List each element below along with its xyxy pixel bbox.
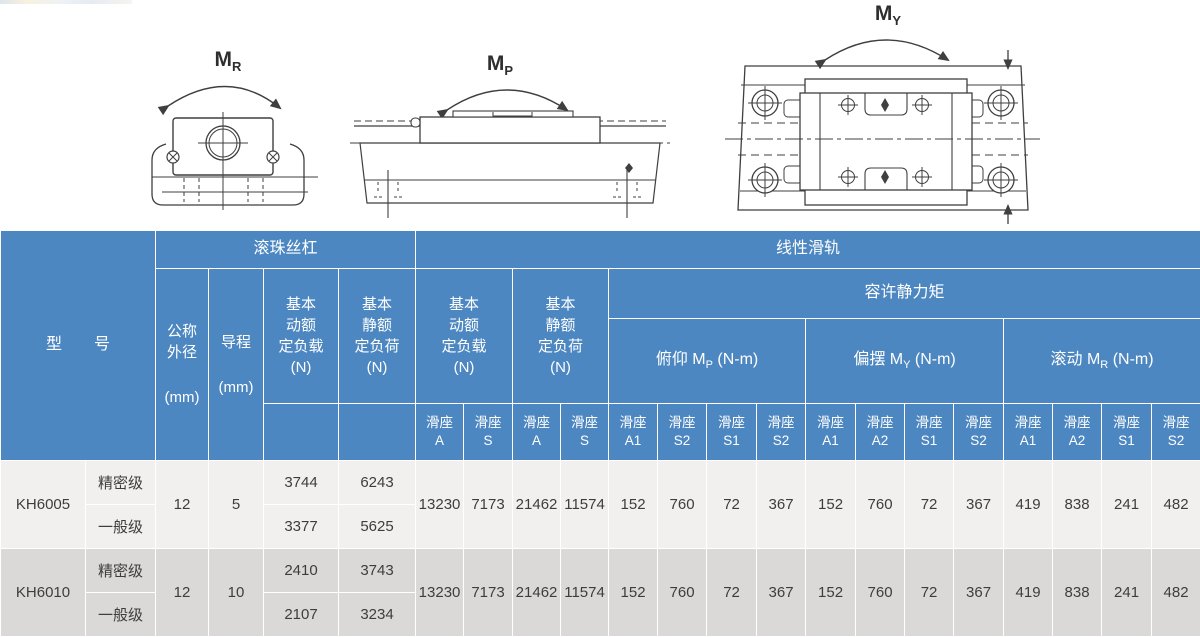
pitch-moment-diagram: MP [350, 48, 670, 228]
header-linear-rail: 线性滑轨 [416, 231, 1200, 269]
moment-value-cell: 367 [954, 461, 1004, 549]
model-cell: KH6010 [1, 549, 86, 637]
lg-value-cell: 21462 [513, 461, 561, 549]
lg-value-cell: 13230 [416, 549, 464, 637]
lg-value-cell: 7173 [464, 549, 513, 637]
carriage-header-cell: 滑座 S [561, 404, 609, 461]
header-bs-static-spacer [339, 404, 416, 461]
lead-unit: (mm) [219, 377, 254, 398]
bs-dynamic-cell: 3744 [264, 461, 339, 505]
moment-value-cell: 367 [954, 549, 1004, 637]
moment-value-cell: 760 [856, 549, 905, 637]
moment-value-cell: 241 [1102, 549, 1152, 637]
lead-cell: 10 [209, 549, 264, 637]
moment-value-cell: 419 [1004, 461, 1053, 549]
grade-cell: 一般级 [86, 593, 156, 637]
moment-value-cell: 482 [1152, 461, 1200, 549]
header-lg-static-load: 基本 静额 定负荷 (N) [513, 269, 609, 404]
lg-value-cell: 7173 [464, 461, 513, 549]
bs-static-cell: 5625 [339, 505, 416, 549]
bs-dynamic-cell: 3377 [264, 505, 339, 549]
header-ball-screw: 滚珠丝杠 [156, 231, 416, 269]
bs-static-cell: 3743 [339, 549, 416, 593]
carriage-header-cell: 滑座 S2 [757, 404, 806, 461]
moment-value-cell: 760 [658, 549, 707, 637]
model-cell: KH6005 [1, 461, 86, 549]
bs-dynamic-cell: 2410 [264, 549, 339, 593]
carriage-header-cell: 滑座 A1 [806, 404, 856, 461]
moment-value-cell: 419 [1004, 549, 1053, 637]
header-yaw-moment: 偏摆 MY (N-m) [806, 319, 1004, 404]
moment-value-cell: 838 [1053, 549, 1102, 637]
carriage-header-cell: 滑座 A2 [856, 404, 905, 461]
od-cell: 12 [156, 461, 209, 549]
lg-value-cell: 21462 [513, 549, 561, 637]
moment-value-cell: 482 [1152, 549, 1200, 637]
moment-diagrams: MR [0, 0, 1200, 230]
moment-value-cell: 72 [707, 549, 757, 637]
moment-value-cell: 367 [757, 549, 806, 637]
header-model: 型 号 [1, 231, 156, 461]
moment-value-cell: 760 [658, 461, 707, 549]
lg-value-cell: 11574 [561, 549, 609, 637]
lg-value-cell: 13230 [416, 461, 464, 549]
nominal-od-unit: (mm) [165, 387, 200, 408]
lg-value-cell: 11574 [561, 461, 609, 549]
moment-value-cell: 152 [609, 461, 658, 549]
lead-cell: 5 [209, 461, 264, 549]
yaw-moment-diagram: MY [725, 2, 1040, 224]
carriage-header-cell: 滑座 S1 [1102, 404, 1152, 461]
header-bs-dynamic-spacer [264, 404, 339, 461]
carriage-header-cell: 滑座 S2 [954, 404, 1004, 461]
carriage-header-cell: 滑座 A1 [609, 404, 658, 461]
roll-moment-drawing [140, 40, 330, 230]
header-lg-dynamic-load: 基本 动额 定负载 (N) [416, 269, 513, 404]
header-lead: 导程(mm) [209, 269, 264, 461]
nominal-od-label: 公称 外径 [167, 321, 197, 363]
moment-value-cell: 152 [806, 549, 856, 637]
carriage-header-cell: 滑座 A2 [1053, 404, 1102, 461]
carriage-header-cell: 滑座 A [513, 404, 561, 461]
moment-value-cell: 72 [707, 461, 757, 549]
bs-dynamic-cell: 2107 [264, 593, 339, 637]
carriage-header-cell: 滑座 A [416, 404, 464, 461]
carriage-header-cell: 滑座 S1 [905, 404, 954, 461]
moment-value-cell: 241 [1102, 461, 1152, 549]
header-bs-dynamic-load: 基本 动额 定负载 (N) [264, 269, 339, 404]
moment-value-cell: 838 [1053, 461, 1102, 549]
carriage-header-cell: 滑座 S1 [707, 404, 757, 461]
moment-value-cell: 760 [856, 461, 905, 549]
header-static-moment: 容许静力矩 [609, 269, 1200, 319]
spec-table: 型 号 滚珠丝杠 线性滑轨 公称 外径(mm) 导程(mm) 基本 动额 定负载… [0, 230, 1200, 637]
pitch-moment-drawing [350, 48, 670, 228]
yaw-moment-drawing [725, 2, 1040, 224]
roll-moment-diagram: MR [140, 40, 330, 230]
carriage-header-cell: 滑座 S2 [1152, 404, 1200, 461]
moment-value-cell: 367 [757, 461, 806, 549]
moment-value-cell: 152 [806, 461, 856, 549]
grade-cell: 精密级 [86, 461, 156, 505]
moment-value-cell: 152 [609, 549, 658, 637]
header-roll-moment: 滚动 MR (N-m) [1004, 319, 1200, 404]
lead-label: 导程 [221, 332, 251, 353]
bs-static-cell: 3234 [339, 593, 416, 637]
header-bs-static-load: 基本 静额 定负荷 (N) [339, 269, 416, 404]
bs-static-cell: 6243 [339, 461, 416, 505]
grade-cell: 精密级 [86, 549, 156, 593]
carriage-header-cell: 滑座 A1 [1004, 404, 1053, 461]
grade-cell: 一般级 [86, 505, 156, 549]
moment-value-cell: 72 [905, 461, 954, 549]
header-nominal-od: 公称 外径(mm) [156, 269, 209, 461]
moment-value-cell: 72 [905, 549, 954, 637]
carriage-header-cell: 滑座 S2 [658, 404, 707, 461]
header-pitch-moment: 俯仰 MP (N-m) [609, 319, 806, 404]
carriage-header-cell: 滑座 S [464, 404, 513, 461]
od-cell: 12 [156, 549, 209, 637]
